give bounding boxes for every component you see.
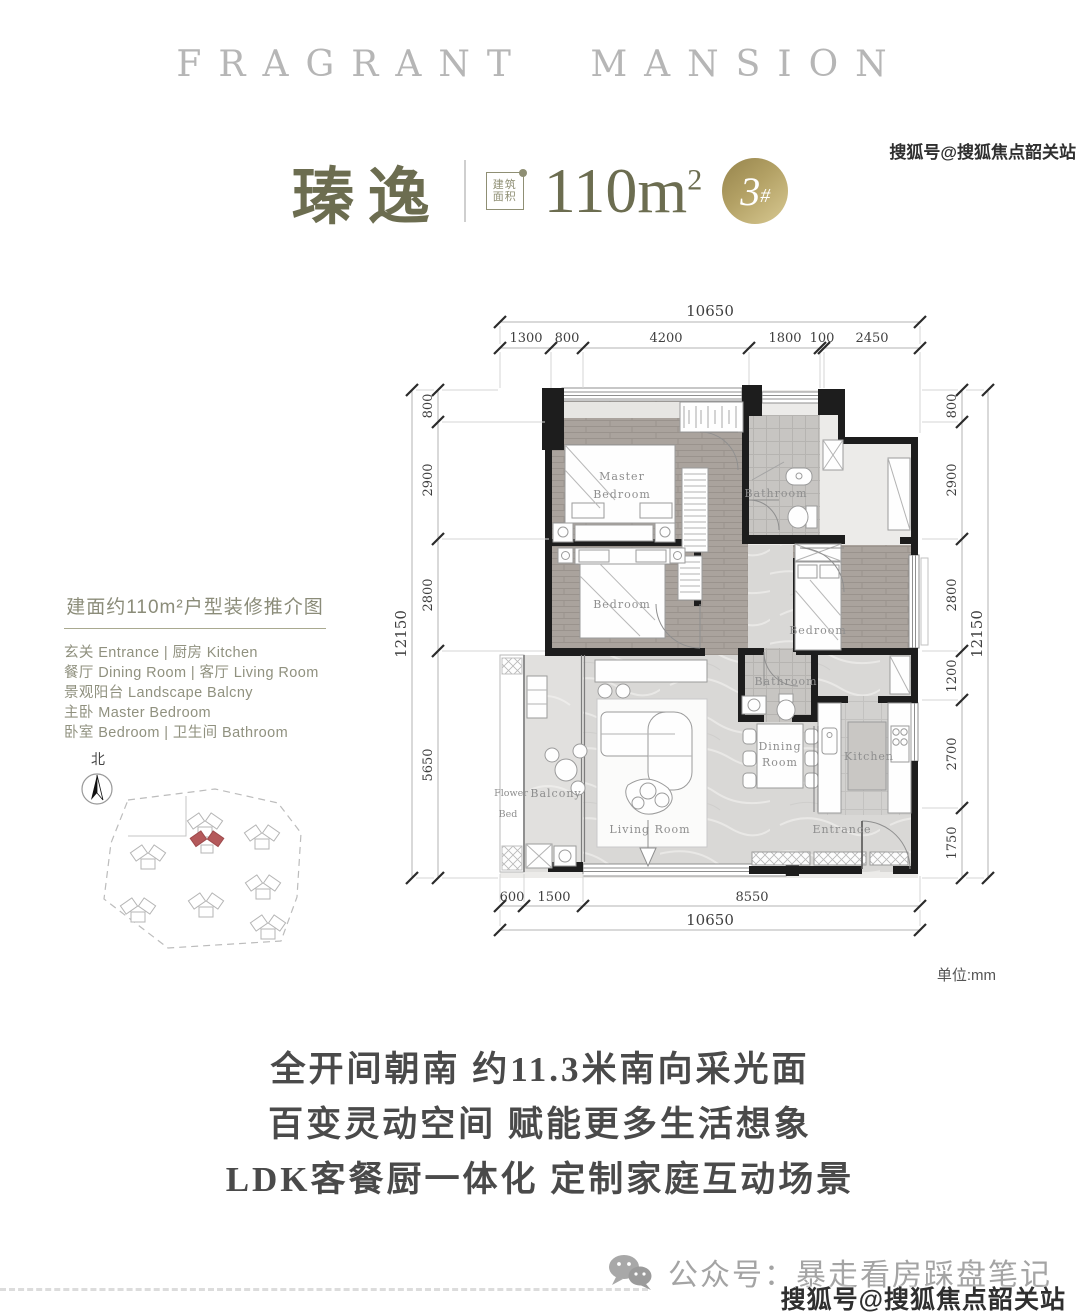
slogan-line: LDK客餐厨一体化 定制家庭互动场景	[0, 1152, 1080, 1207]
room-label-entrance: Entrance	[812, 823, 871, 836]
room-label-bathroom: Bathroom	[754, 675, 817, 688]
dim-top: 1800	[768, 331, 801, 346]
site-building	[120, 898, 155, 922]
floor-plan: 10650 1300 800 4200 1800 100 2450 12150 …	[390, 280, 1040, 1005]
area-superscript: 2	[687, 164, 702, 197]
stamp-dot	[519, 169, 527, 177]
north-label: 北	[91, 751, 105, 767]
dim-right: 2800	[945, 578, 960, 611]
room-label-dining-room: Room	[762, 756, 798, 769]
dim-bottom: 8550	[735, 890, 768, 905]
floor-fills	[500, 390, 918, 878]
unit-name: 瑧逸	[292, 146, 444, 236]
dim-right: 800	[945, 394, 960, 419]
dim-left: 2800	[421, 578, 436, 611]
dim-top: 100	[810, 331, 835, 346]
unit-note: 单位:mm	[937, 967, 996, 984]
slogan-block: 全开间朝南 约11.3米南向采光面 百变灵动空间 赋能更多生活想象 LDK客餐厨…	[0, 1042, 1080, 1207]
dim-top: 1300	[509, 331, 542, 346]
site-building	[188, 893, 223, 917]
area-stamp-line1: 建筑	[493, 179, 517, 191]
site-building	[130, 845, 165, 869]
dim-left: 800	[421, 394, 436, 419]
slogan-line: 百变灵动空间 赋能更多生活想象	[0, 1097, 1080, 1152]
room-label-bathroom: Bathroom	[744, 487, 807, 500]
title-divider	[464, 160, 466, 222]
legend-title: 建面约110m²户型装修推介图	[64, 592, 326, 619]
dim-right-total: 12150	[968, 610, 986, 658]
dim-top: 800	[555, 331, 580, 346]
site-building	[245, 875, 280, 899]
unit-title-row: 瑧逸 建筑 面积 110m2 3 #	[0, 148, 1080, 234]
north-arrow-icon	[82, 774, 112, 804]
dim-bottom: 600	[500, 890, 525, 905]
room-label-flower-bed: Flower	[494, 788, 528, 799]
dim-top: 4200	[649, 331, 682, 346]
dim-top-total: 10650	[686, 302, 734, 320]
area-stamp-line2: 面积	[493, 191, 517, 203]
badge-number: 3	[740, 168, 760, 215]
room-label-kitchen: Kitchen	[844, 750, 894, 763]
dim-right: 2700	[945, 737, 960, 770]
room-label-master-bedroom: Bedroom	[593, 488, 651, 501]
legend-divider	[64, 628, 326, 629]
dim-left-total: 12150	[392, 610, 410, 658]
site-building	[250, 915, 285, 939]
legend-row: 餐厅 Dining Room | 客厅 Living Room	[64, 663, 326, 683]
dim-left: 5650	[421, 748, 436, 781]
legend-row: 景观阳台 Landscape Balcny	[64, 683, 326, 703]
room-label-bedroom: Bedroom	[593, 598, 651, 611]
area-stamp: 建筑 面积	[486, 172, 524, 210]
dim-right: 1750	[945, 826, 960, 859]
dim-bottom-total: 10650	[686, 911, 734, 929]
room-label-bedroom: Bedroom	[789, 624, 847, 637]
unit-area: 110m2	[544, 154, 702, 228]
legend-row: 主卧 Master Bedroom	[64, 703, 326, 723]
legend-box: 建面约110m²户型装修推介图 玄关 Entrance | 厨房 Kitchen…	[64, 592, 326, 743]
room-label-dining-room: Dining	[758, 740, 801, 753]
room-label-master-bedroom: Master	[599, 470, 645, 483]
site-building	[244, 825, 279, 849]
dim-bottom: 1500	[537, 890, 570, 905]
building-badge: 3 #	[722, 158, 788, 224]
watermark-bottom: 搜狐号@搜狐焦点韶关站	[781, 1280, 1066, 1316]
legend-row: 玄关 Entrance | 厨房 Kitchen	[64, 643, 326, 663]
dim-right: 2900	[945, 463, 960, 496]
badge-hash: #	[760, 185, 770, 208]
slogan-line: 全开间朝南 约11.3米南向采光面	[0, 1042, 1080, 1097]
room-label-balcony: Balcony	[530, 787, 581, 800]
dim-left: 2900	[421, 463, 436, 496]
dim-right: 1200	[945, 659, 960, 692]
footer-dashed-divider	[0, 1288, 648, 1291]
room-label-living-room: Living Room	[609, 823, 690, 836]
dim-top: 2450	[855, 331, 888, 346]
room-label-flower-bed: Bed	[499, 809, 518, 820]
brand-title: FRAGRANT MANSION	[0, 44, 1080, 85]
wechat-icon	[608, 1253, 654, 1291]
site-plan: 北	[60, 740, 330, 960]
